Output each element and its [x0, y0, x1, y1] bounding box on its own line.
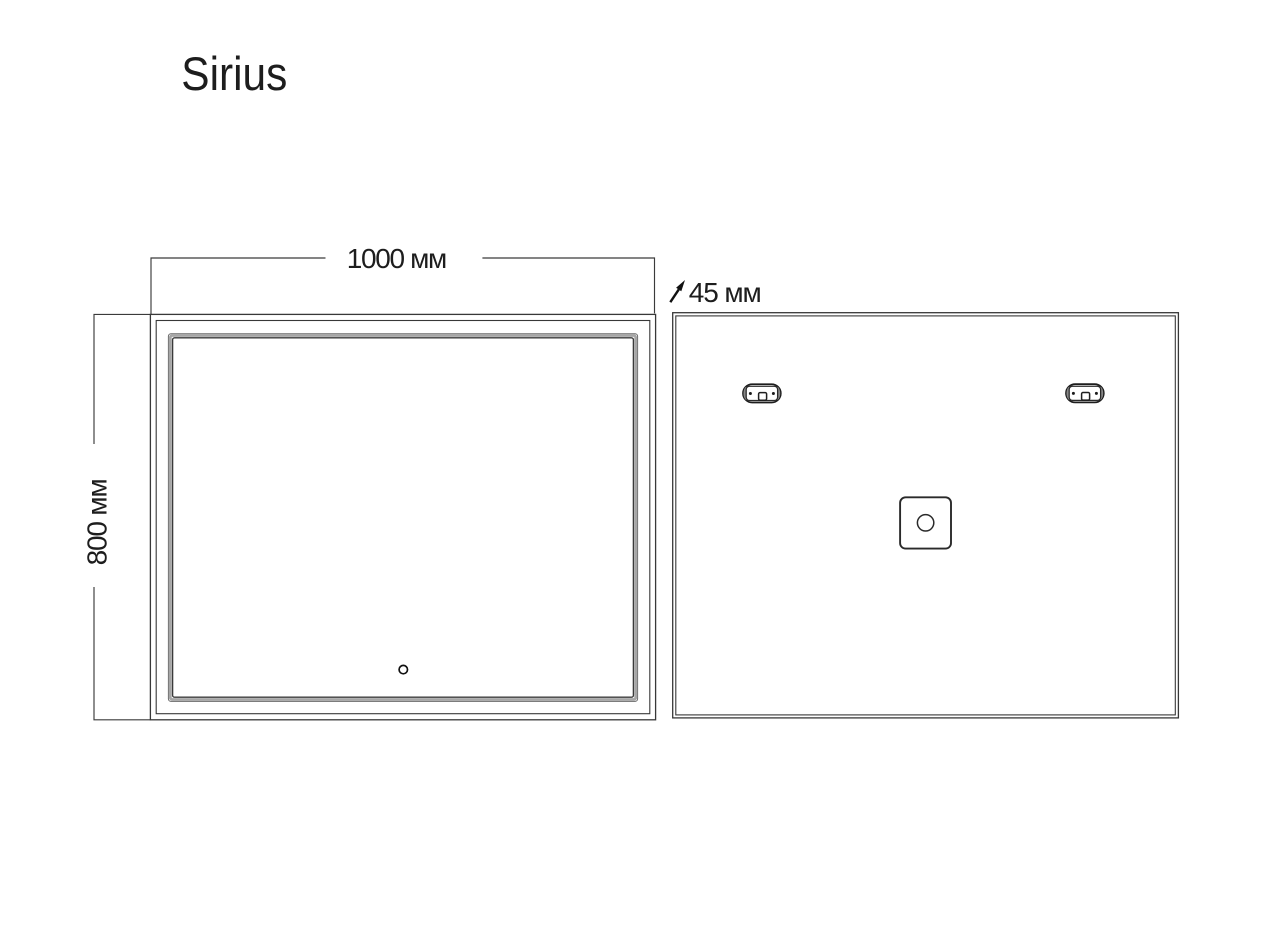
- svg-text:800 мм: 800 мм: [81, 478, 112, 565]
- svg-text:1000 мм: 1000 мм: [347, 243, 447, 274]
- svg-text:Sirius: Sirius: [181, 48, 287, 101]
- svg-text:45 мм: 45 мм: [689, 277, 762, 308]
